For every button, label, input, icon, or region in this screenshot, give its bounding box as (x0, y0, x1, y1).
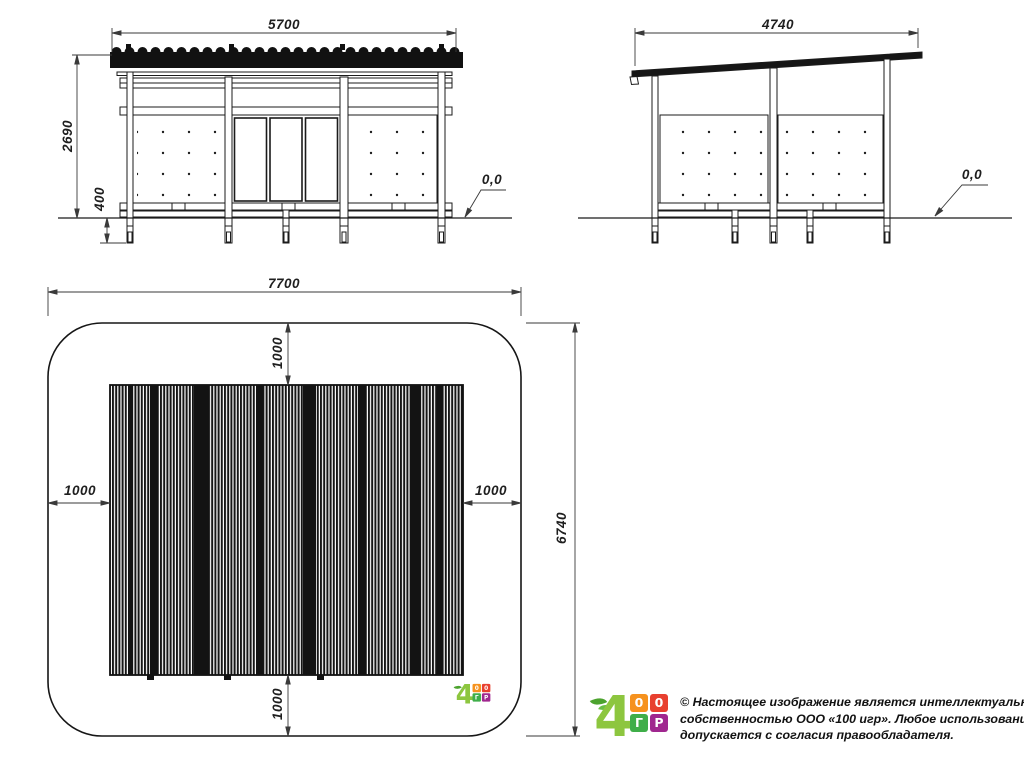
copyright-notice: © Настоящее изображение является интелле… (680, 694, 1024, 744)
dim-front-width: 5700 (254, 17, 314, 33)
dim-plan-depth: 6740 (554, 498, 570, 558)
logo-square-red: 0 (650, 694, 668, 712)
logo-square-green: Г (630, 714, 648, 732)
copyright-line: © Настоящее изображение является интелле… (680, 694, 1024, 711)
dim-plan-clearance-right: 1000 (461, 483, 521, 499)
dim-plan-width: 7700 (254, 276, 314, 292)
label-ground-level-front: 0,0 (472, 172, 512, 188)
dim-plan-clearance-top: 1000 (270, 323, 286, 383)
dim-front-height: 2690 (60, 106, 76, 166)
logo-digit: 4 (456, 681, 474, 709)
logo-digit: 4 (594, 688, 633, 748)
logo-square-purple: Р (650, 714, 668, 732)
drawing-sheet: 5700 2690 400 0,0 4740 0,0 7700 6740 100… (0, 0, 1024, 768)
side-elevation-view (578, 52, 1012, 243)
logo-letter-grid: 0 0 Г Р (473, 684, 491, 702)
dim-side-depth: 4740 (748, 17, 808, 33)
front-elevation-view (58, 44, 512, 243)
dim-front-foundation-depth: 400 (92, 169, 108, 229)
dim-plan-clearance-left: 1000 (50, 483, 110, 499)
drawing-linework (0, 0, 1024, 768)
logo-square-orange: 0 (473, 684, 481, 692)
logo-square-red: 0 (482, 684, 490, 692)
logo-100igr-small: 4 0 0 Г Р (457, 681, 492, 711)
logo-letter-grid: 0 0 Г Р (630, 694, 668, 732)
logo-square-purple: Р (482, 693, 490, 701)
logo-square-orange: 0 (630, 694, 648, 712)
logo-100igr: 4 0 0 Г Р (597, 688, 671, 752)
label-ground-level-side: 0,0 (952, 167, 992, 183)
copyright-line: допускается с согласия правообладателя. (680, 727, 1024, 744)
logo-square-green: Г (473, 693, 481, 701)
copyright-line: собственностью ООО «100 игр». Любое испо… (680, 711, 1024, 728)
dim-plan-clearance-bottom: 1000 (270, 674, 286, 734)
